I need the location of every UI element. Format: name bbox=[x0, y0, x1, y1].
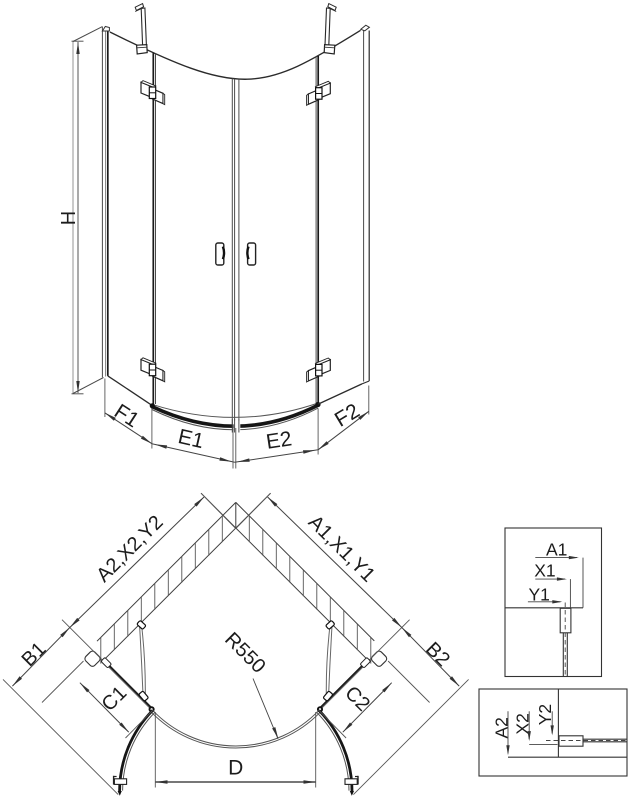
svg-text:H: H bbox=[58, 211, 80, 225]
svg-text:D: D bbox=[228, 757, 243, 780]
svg-text:E2: E2 bbox=[265, 427, 294, 454]
svg-text:A1: A1 bbox=[546, 540, 567, 560]
svg-text:X1: X1 bbox=[534, 560, 555, 580]
